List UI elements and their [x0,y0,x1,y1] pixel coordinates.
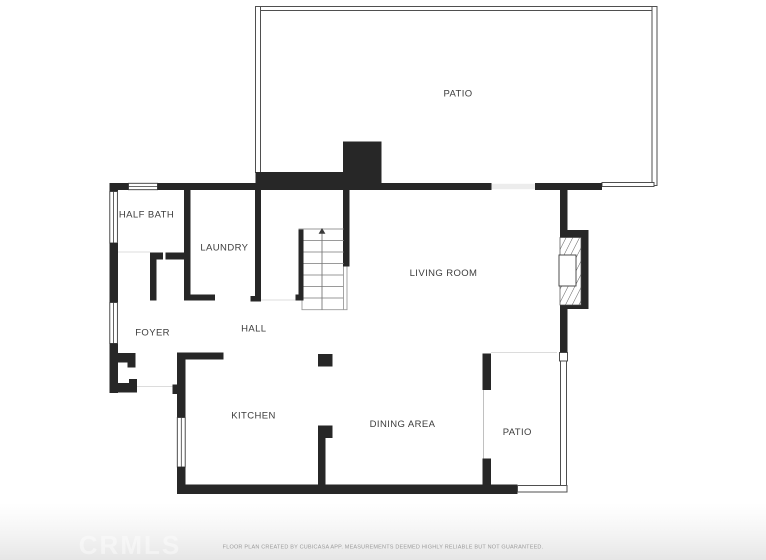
svg-text:FLOOR PLAN CREATED BY CUBICASA: FLOOR PLAN CREATED BY CUBICASA APP. MEAS… [223,545,544,551]
svg-text:KITCHEN: KITCHEN [231,411,276,422]
svg-text:FOYER: FOYER [135,328,170,339]
svg-text:HALF BATH: HALF BATH [119,210,174,221]
svg-text:PATIO: PATIO [443,89,472,100]
svg-text:HALL: HALL [241,324,266,335]
svg-text:CRMLS: CRMLS [79,530,181,560]
svg-text:PATIO: PATIO [503,427,532,438]
svg-text:LAUNDRY: LAUNDRY [200,243,248,254]
svg-text:LIVING ROOM: LIVING ROOM [410,268,478,279]
svg-text:DINING AREA: DINING AREA [370,419,436,430]
